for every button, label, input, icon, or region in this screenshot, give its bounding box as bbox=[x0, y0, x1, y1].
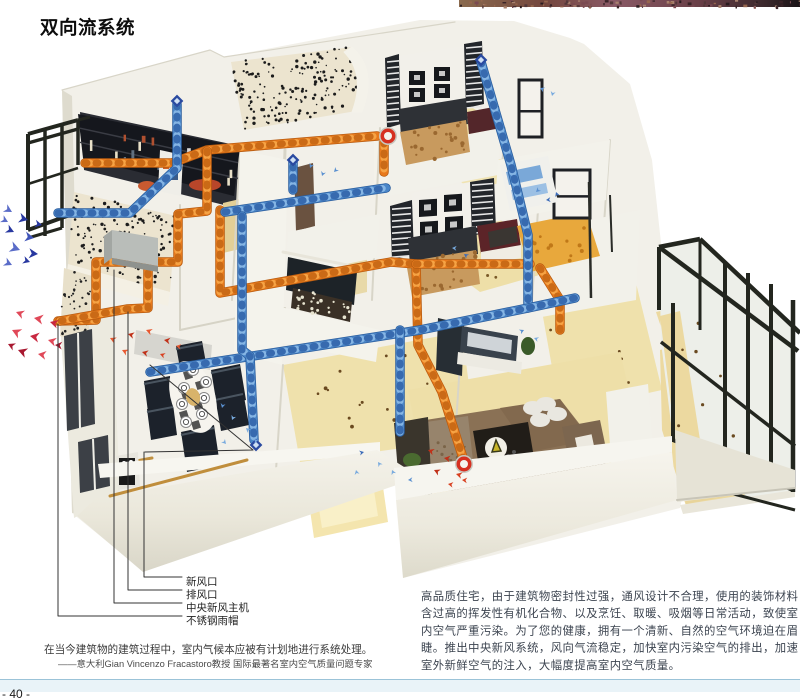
svg-text:含过高的挥发性有机化合物、以及烹饪、取暖、吸烟等日常活动，致: 含过高的挥发性有机化合物、以及烹饪、取暖、吸烟等日常活动，致使室 bbox=[421, 606, 798, 620]
svg-text:双向流系统: 双向流系统 bbox=[40, 17, 135, 38]
svg-text:高品质住宅，由于建筑物密封性过强，通风设计不合理，使用的装饰: 高品质住宅，由于建筑物密封性过强，通风设计不合理，使用的装饰材料 bbox=[421, 589, 798, 603]
svg-text:新风口: 新风口 bbox=[186, 575, 218, 588]
svg-text:——意大利Gian Vincenzo Fracastoro教: ——意大利Gian Vincenzo Fracastoro教授 国际最著名室内空… bbox=[58, 658, 372, 669]
svg-text:内空气严重污染。为了您的健康，拥有一个清新、自然的空气环境迫: 内空气严重污染。为了您的健康，拥有一个清新、自然的空气环境迫在眉 bbox=[421, 623, 798, 637]
svg-text:在当今建筑物的建筑过程中，室内气候本应被有计划地进行系统处理: 在当今建筑物的建筑过程中，室内气候本应被有计划地进行系统处理。 bbox=[44, 643, 372, 656]
svg-text:室外新鲜空气的注入，大幅度提高室内空气质量。: 室外新鲜空气的注入，大幅度提高室内空气质量。 bbox=[421, 658, 680, 672]
svg-text:中央新风主机: 中央新风主机 bbox=[186, 601, 249, 614]
svg-text:- 40 -: - 40 - bbox=[2, 687, 30, 700]
svg-text:排风口: 排风口 bbox=[186, 588, 218, 601]
svg-text:睫。推出中央新风系统，风向气流稳定，加快室内污染空气的排出，: 睫。推出中央新风系统，风向气流稳定，加快室内污染空气的排出，加速 bbox=[421, 641, 798, 655]
svg-text:不锈钢雨帽: 不锈钢雨帽 bbox=[186, 614, 239, 627]
